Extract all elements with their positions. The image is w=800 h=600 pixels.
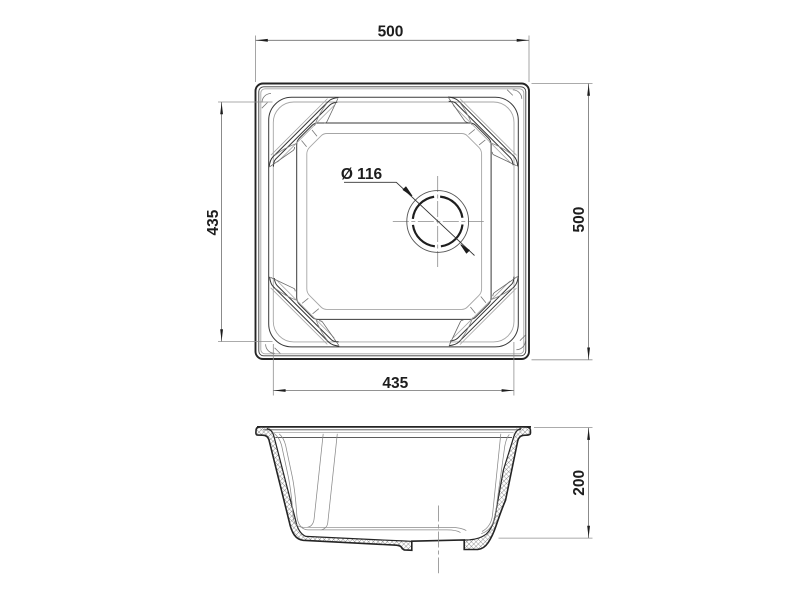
svg-text:435: 435 <box>205 209 222 235</box>
svg-text:200: 200 <box>571 470 588 496</box>
svg-text:Ø 116: Ø 116 <box>341 166 383 183</box>
svg-text:500: 500 <box>571 207 588 233</box>
svg-text:435: 435 <box>382 375 408 392</box>
svg-text:500: 500 <box>378 23 404 40</box>
